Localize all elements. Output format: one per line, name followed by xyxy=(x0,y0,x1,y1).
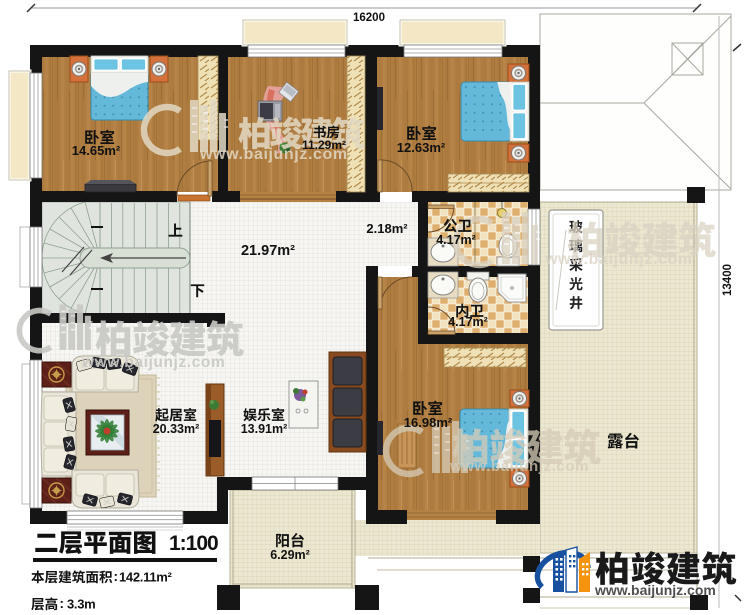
svg-text:16200: 16200 xyxy=(353,12,385,24)
svg-text:1:100: 1:100 xyxy=(169,532,218,555)
svg-text::: : xyxy=(60,596,65,611)
svg-text:6.29m²: 6.29m² xyxy=(270,548,310,562)
svg-text:16.98m²: 16.98m² xyxy=(404,415,453,430)
svg-text:12.63m²: 12.63m² xyxy=(397,140,446,155)
svg-text:4.17m²: 4.17m² xyxy=(448,315,488,329)
svg-text:2.18m²: 2.18m² xyxy=(366,221,408,236)
svg-text:3.3m: 3.3m xyxy=(67,597,95,612)
svg-text:11.29m²: 11.29m² xyxy=(302,138,346,152)
svg-text:142.11m²: 142.11m² xyxy=(119,570,173,585)
svg-text:13400: 13400 xyxy=(722,264,734,296)
svg-text:14.65m²: 14.65m² xyxy=(72,143,121,158)
svg-text:www.baijunjz.com: www.baijunjz.com xyxy=(594,582,716,598)
svg-text:13.91m²: 13.91m² xyxy=(241,422,288,436)
svg-text:www.baijunjz.com: www.baijunjz.com xyxy=(81,354,225,371)
svg-text:www.baijunjz.com: www.baijunjz.com xyxy=(544,251,693,268)
svg-text:20.33m²: 20.33m² xyxy=(153,422,200,436)
svg-text:www.baijunjz.com: www.baijunjz.com xyxy=(449,458,589,475)
svg-text:4.17m²: 4.17m² xyxy=(436,233,476,247)
svg-text:21.97m²: 21.97m² xyxy=(241,243,295,259)
svg-text::: : xyxy=(114,569,119,584)
